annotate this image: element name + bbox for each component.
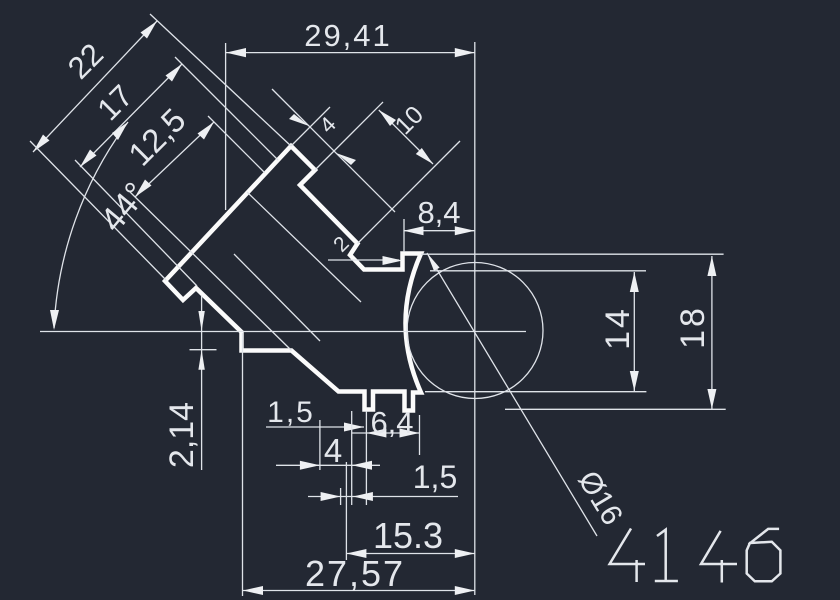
svg-text:27,57: 27,57 — [305, 553, 405, 594]
svg-text:2,14: 2,14 — [163, 402, 201, 468]
svg-text:6,4: 6,4 — [370, 405, 413, 440]
svg-text:4: 4 — [324, 432, 342, 469]
svg-text:1,5: 1,5 — [413, 459, 457, 495]
svg-text:29,41: 29,41 — [304, 18, 392, 53]
svg-text:1,5: 1,5 — [267, 396, 315, 429]
svg-text:15.3: 15.3 — [373, 515, 443, 556]
svg-text:18: 18 — [674, 305, 712, 349]
svg-text:14: 14 — [599, 306, 637, 350]
svg-text:8,4: 8,4 — [417, 195, 460, 230]
